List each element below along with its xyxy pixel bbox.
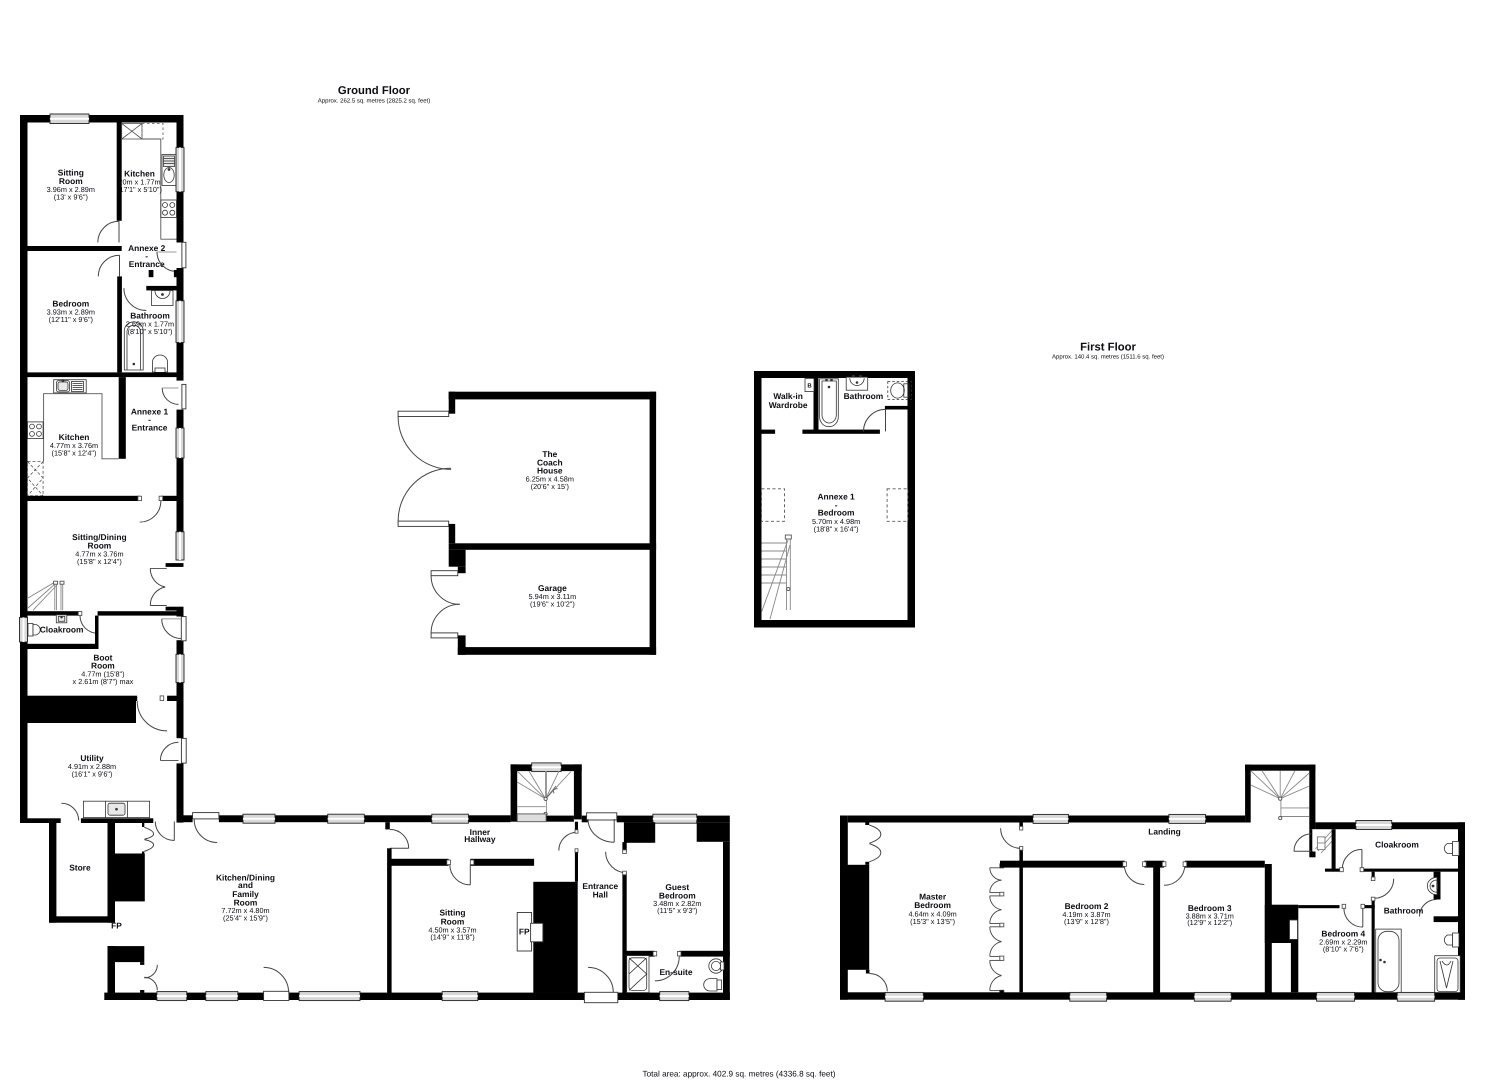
- svg-text:(13'9" x 12'8"): (13'9" x 12'8"): [1064, 917, 1109, 926]
- svg-text:FP: FP: [111, 920, 122, 930]
- svg-text:(13' x 9'6"): (13' x 9'6"): [54, 193, 88, 202]
- svg-text:(15'3" x 13'5"): (15'3" x 13'5"): [910, 917, 955, 926]
- svg-text:First Floor: First Floor: [1080, 341, 1136, 353]
- svg-text:(12'9" x 12'2"): (12'9" x 12'2"): [1187, 918, 1232, 927]
- svg-text:(14'9" x 11'8"): (14'9" x 11'8"): [430, 933, 474, 942]
- svg-text:(18'8" x 16'4"): (18'8" x 16'4"): [814, 525, 859, 534]
- svg-text:Bedroom: Bedroom: [818, 508, 855, 518]
- svg-text:(16'1" x 9'6"): (16'1" x 9'6"): [72, 769, 113, 778]
- svg-text:(11'5" x 9'3"): (11'5" x 9'3"): [657, 906, 697, 915]
- svg-text:Approx. 140.4 sq. metres (1511: Approx. 140.4 sq. metres (1511.6 sq. fee…: [1052, 353, 1164, 360]
- svg-text:(25'4" x 15'9"): (25'4" x 15'9"): [223, 913, 268, 922]
- svg-text:Cloakroom: Cloakroom: [1375, 840, 1419, 850]
- svg-text:Cloakroom: Cloakroom: [40, 625, 84, 635]
- svg-text:Bathroom: Bathroom: [1384, 906, 1424, 916]
- svg-text:Entrance: Entrance: [129, 259, 165, 269]
- svg-text:Entrance: Entrance: [132, 422, 168, 432]
- svg-text:Hall: Hall: [593, 889, 608, 899]
- svg-text:Hallway: Hallway: [464, 834, 496, 844]
- svg-text:FP: FP: [519, 927, 530, 937]
- svg-text:(17'1" x 5'10"): (17'1" x 5'10"): [117, 185, 162, 194]
- svg-text:x 2.61m (8'7") max: x 2.61m (8'7") max: [73, 677, 134, 686]
- svg-text:B: B: [807, 383, 812, 390]
- svg-text:En-suite: En-suite: [659, 967, 692, 977]
- svg-text:(8'10" x 5'10"): (8'10" x 5'10"): [128, 327, 173, 336]
- svg-text:Ground Floor: Ground Floor: [338, 85, 411, 97]
- svg-text:Bathroom: Bathroom: [844, 391, 884, 401]
- svg-text:(20'6" x 15'): (20'6" x 15'): [531, 482, 569, 491]
- svg-text:(12'11" x 9'6"): (12'11" x 9'6"): [49, 315, 93, 324]
- svg-text:Total area: approx. 402.9 sq.: Total area: approx. 402.9 sq. metres (43…: [643, 1070, 836, 1079]
- svg-text:Wardrobe: Wardrobe: [769, 400, 808, 410]
- svg-text:(15'8" x 12'4"): (15'8" x 12'4"): [77, 557, 122, 566]
- svg-text:(8'10" x 7'6"): (8'10" x 7'6"): [1323, 944, 1364, 953]
- svg-text:Store: Store: [69, 863, 91, 873]
- svg-text:Landing: Landing: [1148, 826, 1181, 836]
- svg-text:Approx. 262.5 sq. metres (2825: Approx. 262.5 sq. metres (2825.2 sq. fee…: [318, 97, 430, 104]
- svg-text:(19'6" x 10'2"): (19'6" x 10'2"): [530, 600, 575, 609]
- svg-text:(15'8" x 12'4"): (15'8" x 12'4"): [52, 449, 97, 458]
